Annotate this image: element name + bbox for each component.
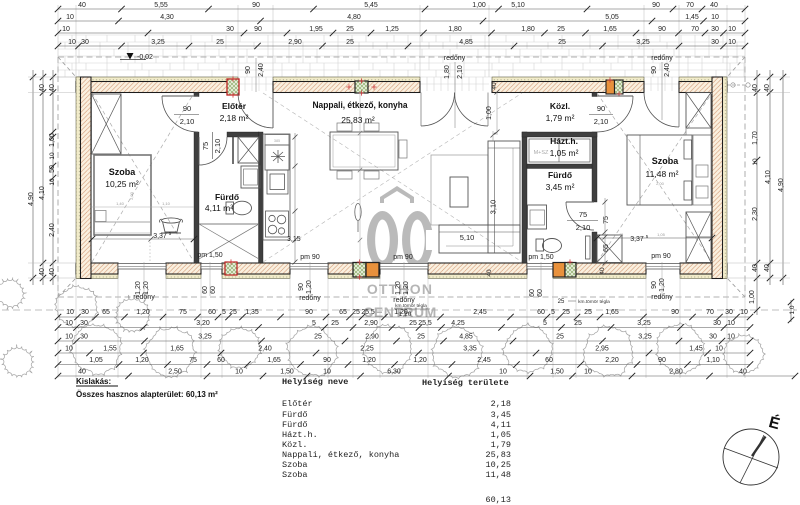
svg-text:65: 65 (603, 244, 610, 252)
svg-text:25: 25 (558, 39, 566, 46)
svg-text:2,90: 2,90 (288, 39, 302, 46)
svg-text:pm 90: pm 90 (651, 253, 671, 260)
svg-text:25: 25 (409, 320, 417, 327)
svg-text:2,45: 2,45 (473, 309, 487, 316)
svg-text:40: 40 (752, 84, 759, 92)
svg-text:2,10: 2,10 (576, 223, 591, 232)
svg-text:3,25: 3,25 (151, 39, 165, 46)
svg-text:1,20: 1,20 (135, 281, 142, 295)
svg-text:90: 90 (252, 2, 260, 9)
svg-text:4,11: 4,11 (491, 420, 511, 430)
svg-text:3,45 m²: 3,45 m² (546, 182, 575, 192)
svg-text:10: 10 (49, 152, 56, 160)
svg-text:M+SZ: M+SZ (534, 150, 549, 156)
svg-text:4,85: 4,85 (459, 334, 473, 341)
svg-text:90: 90 (245, 66, 252, 74)
svg-text:60: 60 (208, 309, 216, 316)
svg-text:90: 90 (597, 104, 605, 113)
svg-text:2,40: 2,40 (258, 346, 272, 353)
svg-text:2,40: 2,40 (49, 223, 56, 237)
svg-text:40: 40 (752, 264, 759, 272)
svg-text:6,30: 6,30 (387, 369, 401, 376)
svg-text:Fürdő: Fürdő (548, 170, 572, 180)
svg-text:Közl.: Közl. (550, 101, 570, 111)
svg-text:Házt.h.: Házt.h. (550, 136, 578, 146)
svg-text:5,55: 5,55 (154, 2, 168, 9)
svg-text:70: 70 (686, 2, 694, 9)
svg-text:40: 40 (764, 264, 771, 272)
svg-text:pm 1,50: pm 1,50 (197, 252, 222, 259)
svg-text:1,20: 1,20 (413, 357, 427, 364)
svg-text:Szoba: Szoba (652, 156, 679, 166)
svg-text:10: 10 (65, 346, 73, 353)
svg-text:30: 30 (709, 334, 717, 341)
svg-text:redőny: redőny (299, 295, 321, 302)
svg-text:10: 10 (65, 334, 73, 341)
svg-text:3,37: 3,37 (153, 233, 167, 240)
svg-text:Szoba: Szoba (109, 167, 136, 177)
svg-text:10: 10 (752, 158, 759, 166)
svg-text:1,45: 1,45 (685, 14, 699, 21)
svg-text:25: 25 (229, 309, 237, 316)
svg-text:90: 90 (323, 357, 331, 364)
svg-text:10: 10 (49, 178, 56, 186)
svg-text:1,65: 1,65 (267, 357, 281, 364)
svg-text:1,20: 1,20 (394, 309, 408, 316)
svg-text:redőny: redőny (393, 297, 415, 304)
svg-text:1,10: 1,10 (706, 357, 720, 364)
svg-text:2,20: 2,20 (605, 357, 619, 364)
svg-text:1,00: 1,00 (486, 106, 493, 120)
svg-text:2,00: 2,00 (129, 191, 134, 200)
svg-text:Helyiség neve: Helyiség neve (282, 377, 348, 387)
svg-text:10: 10 (584, 369, 592, 376)
svg-text:10: 10 (62, 26, 70, 33)
svg-text:km.tömör tégla: km.tömör tégla (578, 299, 610, 305)
svg-text:65: 65 (339, 309, 347, 316)
svg-text:2,10: 2,10 (213, 139, 222, 154)
svg-text:5,10: 5,10 (460, 233, 475, 242)
svg-text:4,90: 4,90 (778, 178, 785, 192)
svg-text:Szoba: Szoba (282, 460, 308, 470)
svg-text:1,79 m²: 1,79 m² (546, 113, 575, 123)
svg-text:40: 40 (39, 268, 46, 276)
svg-text:10: 10 (235, 369, 243, 376)
svg-text:3,45: 3,45 (491, 410, 511, 420)
svg-text:60: 60 (217, 357, 225, 364)
svg-text:90: 90 (298, 283, 305, 291)
svg-text:2,90: 2,90 (364, 320, 378, 327)
svg-text:Összes hasznos alapterület: 6: Összes hasznos alapterület: 60,13 m² (76, 390, 218, 399)
svg-text:1,95: 1,95 (309, 26, 323, 33)
svg-text:40: 40 (710, 2, 718, 9)
svg-text:10: 10 (68, 39, 76, 46)
svg-text:25,5: 25,5 (418, 320, 432, 327)
svg-text:90: 90 (305, 309, 313, 316)
svg-text:25,5: 25,5 (361, 309, 375, 316)
svg-text:Helyiség területe: Helyiség területe (422, 378, 509, 388)
svg-text:10: 10 (711, 14, 719, 21)
svg-text:3,35: 3,35 (463, 346, 477, 353)
svg-text:90: 90 (658, 26, 666, 33)
svg-text:30: 30 (80, 334, 88, 341)
svg-text:1,50: 1,50 (550, 369, 564, 376)
svg-text:75: 75 (579, 210, 587, 219)
svg-text:2,10: 2,10 (594, 117, 609, 126)
svg-text:25: 25 (557, 26, 565, 33)
svg-text:1,65: 1,65 (605, 309, 619, 316)
svg-text:Szoba: Szoba (282, 470, 308, 480)
svg-text:3,37: 3,37 (630, 236, 644, 243)
svg-text:75: 75 (603, 216, 610, 224)
svg-text:5,45: 5,45 (364, 2, 378, 9)
svg-text:Nappali, étkező, konyha: Nappali, étkező, konyha (313, 100, 409, 110)
svg-text:25: 25 (331, 320, 339, 327)
svg-text:1,00: 1,00 (472, 2, 486, 9)
svg-text:1,65: 1,65 (603, 26, 617, 33)
svg-text:1,25: 1,25 (385, 26, 399, 33)
svg-text:1,20: 1,20 (362, 357, 376, 364)
svg-text:1,35: 1,35 (245, 309, 259, 316)
svg-text:75: 75 (179, 309, 187, 316)
svg-text:4,25: 4,25 (451, 320, 465, 327)
svg-text:10: 10 (66, 14, 74, 21)
svg-text:25: 25 (562, 309, 570, 316)
svg-text:pm 90: pm 90 (393, 254, 413, 261)
svg-text:30: 30 (81, 309, 89, 316)
svg-text:1,55: 1,55 (103, 346, 117, 353)
svg-text:redőny: redőny (651, 294, 673, 301)
svg-text:5,10: 5,10 (511, 2, 525, 9)
svg-text:70: 70 (691, 26, 699, 33)
svg-text:1,80: 1,80 (521, 26, 535, 33)
svg-text:40: 40 (491, 82, 498, 90)
svg-text:Fürdő: Fürdő (215, 192, 239, 202)
svg-text:40: 40 (78, 369, 86, 376)
svg-text:1,05: 1,05 (491, 430, 511, 440)
svg-text:2,10: 2,10 (457, 65, 464, 79)
svg-text:4,80: 4,80 (347, 14, 361, 21)
svg-text:pm 1,50: pm 1,50 (528, 254, 553, 261)
svg-text:1,50: 1,50 (280, 369, 294, 376)
svg-text:2,25: 2,25 (360, 346, 374, 353)
svg-text:10: 10 (740, 309, 748, 316)
svg-text:60: 60 (537, 309, 545, 316)
svg-text:25: 25 (346, 39, 354, 46)
svg-text:25: 25 (216, 39, 224, 46)
svg-text:5: 5 (222, 309, 226, 316)
svg-text:1,0: 1,0 (789, 305, 796, 314)
svg-text:2,10: 2,10 (180, 117, 195, 126)
svg-text:2,40: 2,40 (664, 63, 671, 77)
svg-text:10: 10 (728, 26, 736, 33)
svg-text:40: 40 (764, 84, 771, 92)
svg-text:Nappali, étkező, konyha: Nappali, étkező, konyha (282, 450, 399, 460)
svg-text:75: 75 (189, 357, 197, 364)
svg-text:10: 10 (728, 39, 736, 46)
svg-text:4,90: 4,90 (28, 192, 35, 206)
svg-text:40: 40 (78, 2, 86, 9)
svg-text:60: 60 (529, 289, 536, 297)
svg-text:30: 30 (713, 320, 721, 327)
svg-text:10: 10 (323, 369, 331, 376)
svg-text:Előtér: Előtér (282, 399, 313, 409)
svg-text:1,65: 1,65 (170, 346, 184, 353)
svg-text:1,79: 1,79 (491, 440, 511, 450)
svg-text:10: 10 (727, 334, 735, 341)
svg-text:60: 60 (545, 357, 553, 364)
svg-text:90: 90 (652, 2, 660, 9)
svg-text:25: 25 (556, 334, 564, 341)
svg-text:1,80: 1,80 (448, 26, 462, 33)
svg-text:1,70: 1,70 (752, 131, 759, 145)
svg-text:5: 5 (312, 320, 316, 327)
svg-text:1,20: 1,20 (395, 281, 402, 295)
svg-text:pm 90: pm 90 (300, 254, 320, 261)
svg-text:10,25 m²: 10,25 m² (105, 179, 139, 189)
svg-text:3,25: 3,25 (637, 320, 651, 327)
svg-text:1,00: 1,00 (49, 133, 56, 147)
svg-text:Közl.: Közl. (282, 440, 308, 450)
svg-text:60: 60 (210, 286, 217, 294)
svg-text:90: 90 (183, 104, 191, 113)
svg-text:2,95: 2,95 (595, 346, 609, 353)
svg-text:10: 10 (65, 320, 73, 327)
svg-text:10: 10 (715, 346, 723, 353)
svg-text:2,45: 2,45 (477, 357, 491, 364)
svg-text:11,48: 11,48 (485, 470, 511, 480)
svg-text:3,20: 3,20 (196, 320, 210, 327)
svg-text:1,80: 1,80 (444, 65, 451, 79)
svg-text:2,30: 2,30 (752, 207, 759, 221)
svg-text:90: 90 (254, 26, 262, 33)
svg-text:Előtér: Előtér (222, 101, 247, 111)
svg-text:25: 25 (558, 299, 565, 305)
svg-text:3,10: 3,10 (489, 200, 498, 215)
svg-text:2,18: 2,18 (491, 399, 511, 409)
svg-text:25: 25 (352, 309, 360, 316)
svg-text:75: 75 (201, 142, 210, 150)
svg-text:redőny: redőny (444, 55, 466, 62)
svg-text:90: 90 (651, 66, 658, 74)
svg-text:3,25: 3,25 (636, 39, 650, 46)
svg-text:30: 30 (725, 309, 733, 316)
svg-text:90: 90 (671, 309, 679, 316)
svg-text:1,45: 1,45 (689, 346, 703, 353)
svg-text:Kislakás:: Kislakás: (76, 377, 111, 386)
svg-text:-0,02: -0,02 (137, 54, 153, 61)
svg-text:70: 70 (706, 309, 714, 316)
svg-text:60: 60 (537, 289, 544, 297)
svg-text:4,30: 4,30 (160, 14, 174, 21)
svg-text:1,05 m²: 1,05 m² (550, 148, 579, 158)
svg-text:4,10: 4,10 (39, 186, 46, 200)
svg-text:25,83: 25,83 (485, 450, 511, 460)
svg-text:3,15: 3,15 (287, 236, 301, 243)
svg-text:30: 30 (226, 26, 234, 33)
svg-text:2,50: 2,50 (168, 369, 182, 376)
svg-text:40: 40 (486, 269, 493, 277)
svg-text:1,00: 1,00 (749, 290, 756, 304)
svg-text:Fürdő: Fürdő (282, 420, 308, 430)
svg-text:1,05: 1,05 (657, 232, 666, 237)
svg-text:30: 30 (81, 39, 89, 46)
svg-text:2,80: 2,80 (669, 369, 683, 376)
svg-text:1,20: 1,20 (136, 309, 150, 316)
svg-text:1,20: 1,20 (306, 280, 313, 294)
svg-text:40: 40 (49, 84, 56, 92)
svg-text:25: 25 (584, 309, 592, 316)
svg-text:10: 10 (499, 369, 507, 376)
svg-text:40: 40 (619, 232, 624, 237)
svg-text:1,05: 1,05 (89, 357, 103, 364)
svg-text:90: 90 (658, 357, 666, 364)
svg-text:4,10: 4,10 (765, 170, 772, 184)
svg-text:1,10: 1,10 (162, 201, 171, 206)
svg-text:25: 25 (417, 334, 425, 341)
svg-text:1,20: 1,20 (135, 357, 149, 364)
svg-text:Fürdő: Fürdő (282, 410, 308, 420)
svg-text:2,18 m²: 2,18 m² (220, 113, 249, 123)
svg-text:60,13: 60,13 (485, 495, 511, 505)
svg-text:30: 30 (80, 320, 88, 327)
svg-text:25: 25 (574, 320, 582, 327)
svg-text:10: 10 (727, 320, 735, 327)
svg-text:40: 40 (49, 268, 56, 276)
svg-text:40: 40 (599, 267, 606, 275)
svg-text:50: 50 (49, 165, 56, 173)
svg-text:2,00: 2,00 (656, 181, 665, 186)
svg-text:1,40: 1,40 (116, 201, 125, 206)
svg-text:65: 65 (102, 309, 110, 316)
svg-text:4,85: 4,85 (459, 39, 473, 46)
svg-text:30: 30 (711, 39, 719, 46)
svg-text:2,90: 2,90 (365, 334, 379, 341)
svg-text:25: 25 (314, 334, 322, 341)
svg-text:1,20: 1,20 (659, 278, 666, 292)
svg-text:25,83 m²: 25,83 m² (341, 115, 375, 125)
svg-text:60: 60 (202, 286, 209, 294)
svg-text:40: 40 (739, 369, 747, 376)
svg-text:10,25: 10,25 (485, 460, 511, 470)
svg-text:5: 5 (543, 320, 547, 327)
svg-text:11,48 m²: 11,48 m² (646, 169, 679, 179)
svg-text:5: 5 (551, 309, 555, 316)
svg-text:5,05: 5,05 (605, 14, 619, 21)
svg-text:Házt.h.: Házt.h. (282, 430, 318, 440)
svg-text:2,40: 2,40 (258, 63, 265, 77)
svg-text:90: 90 (651, 281, 658, 289)
svg-text:10: 10 (66, 309, 74, 316)
svg-text:30: 30 (711, 26, 719, 33)
svg-text:4,11 m²: 4,11 m² (205, 203, 233, 213)
svg-text:3,25: 3,25 (638, 334, 652, 341)
svg-text:40: 40 (39, 84, 46, 92)
svg-text:redőny: redőny (651, 55, 673, 62)
svg-text:3,25: 3,25 (198, 334, 212, 341)
svg-text:25: 25 (346, 26, 354, 33)
svg-text:385: 385 (274, 139, 280, 143)
